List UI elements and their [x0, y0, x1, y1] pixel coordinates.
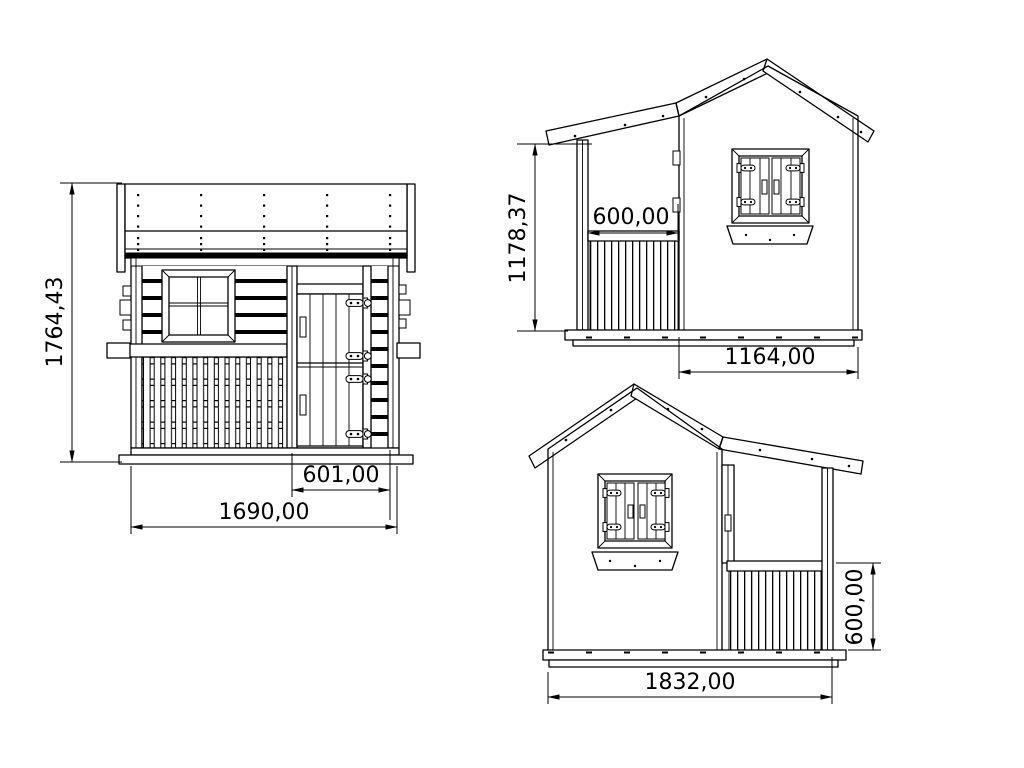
- door-hinge-icon: [346, 298, 371, 308]
- door-hinge-icon: [346, 374, 371, 384]
- flower-box: [727, 226, 813, 244]
- playhouse-technical-drawing: 1764,43 601,00 1690,00: [0, 0, 1024, 768]
- shutter-hinge-icon: [651, 523, 669, 532]
- flower-box: [592, 552, 678, 570]
- shutter-hinge-icon: [603, 523, 621, 532]
- door-hinge-icon: [346, 429, 371, 439]
- side-a-window: [727, 149, 813, 244]
- dimension-label-wall-height: 1178,37: [506, 193, 531, 284]
- shutter-hinge-icon: [786, 164, 804, 173]
- dimension-label-door-width: 601,00: [303, 463, 380, 488]
- front-door: [287, 266, 371, 448]
- shutter-hinge-icon: [737, 198, 755, 207]
- dimension-label-porch-depth: 600,00: [593, 205, 670, 230]
- dimension-label-cabin-depth: 1164,00: [725, 345, 816, 370]
- shutter-hinge-icon: [786, 198, 804, 207]
- dimension-label-total-depth: 1832,00: [645, 670, 736, 695]
- dimension-label-overall-height: 1764,43: [43, 277, 68, 368]
- side-b-floor: [543, 650, 846, 667]
- front-base: [119, 448, 413, 464]
- front-window: [162, 270, 235, 342]
- side-a-floor: [565, 330, 862, 346]
- side-b-window: [592, 474, 678, 570]
- dimension-label-total-width: 1690,00: [219, 500, 310, 525]
- door-hinge-icon: [346, 351, 371, 361]
- shutter-hinge-icon: [737, 164, 755, 173]
- shutter-hinge-icon: [651, 489, 669, 498]
- dimension-label-railing-height: 600,00: [843, 569, 868, 646]
- shutter-hinge-icon: [603, 489, 621, 498]
